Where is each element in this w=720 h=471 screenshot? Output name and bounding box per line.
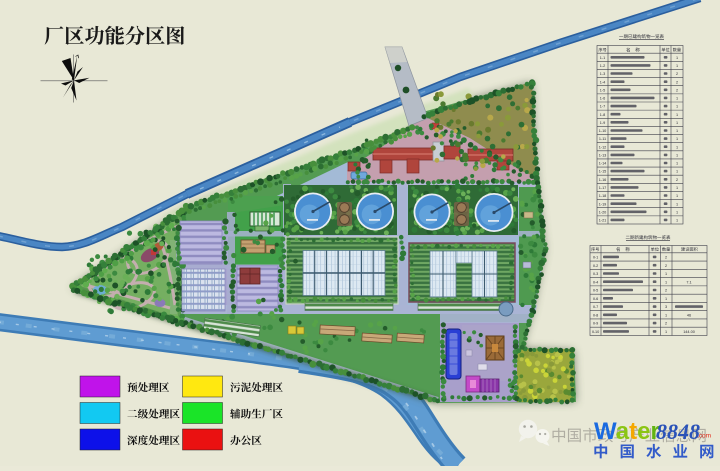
svg-text:1-19: 1-19: [599, 202, 607, 206]
svg-text:II-3: II-3: [593, 272, 599, 276]
svg-text:1-17: 1-17: [599, 186, 607, 190]
svg-text:2: 2: [665, 256, 667, 260]
svg-text:1: 1: [665, 272, 667, 276]
svg-text:1-12: 1-12: [599, 145, 607, 149]
svg-text:1: 1: [676, 121, 678, 125]
svg-text:1: 1: [676, 145, 678, 149]
svg-text:1-3: 1-3: [600, 72, 606, 76]
svg-text:1-14: 1-14: [599, 162, 607, 166]
svg-text:2: 2: [676, 80, 678, 84]
svg-text:1-7: 1-7: [600, 105, 606, 109]
svg-text:1: 1: [676, 170, 678, 174]
svg-text:II-2: II-2: [593, 264, 599, 268]
svg-text:3: 3: [665, 305, 667, 309]
svg-text:1: 1: [676, 186, 678, 190]
svg-text:1: 1: [665, 280, 667, 284]
svg-text:1-11: 1-11: [599, 137, 606, 141]
svg-text:1-15: 1-15: [599, 170, 607, 174]
svg-text:1: 1: [676, 202, 678, 206]
svg-text:2: 2: [676, 72, 678, 76]
svg-text:1: 1: [676, 137, 678, 141]
svg-text:II-8: II-8: [593, 313, 599, 317]
svg-text:1-4: 1-4: [600, 80, 606, 84]
svg-text:1-10: 1-10: [599, 129, 607, 133]
svg-text:1: 1: [676, 194, 678, 198]
svg-text:1: 1: [676, 97, 678, 101]
svg-text:1-20: 1-20: [599, 210, 607, 214]
svg-text:1: 1: [676, 105, 678, 109]
svg-text:1-13: 1-13: [599, 154, 607, 158]
svg-text:1-21: 1-21: [599, 219, 607, 223]
svg-text:1: 1: [676, 219, 678, 223]
svg-text:1-1: 1-1: [600, 56, 606, 60]
svg-text:1: 1: [676, 210, 678, 214]
svg-text:1: 1: [665, 297, 667, 301]
svg-text:II-5: II-5: [593, 289, 599, 293]
svg-text:2: 2: [676, 178, 678, 182]
svg-text:1: 1: [665, 313, 667, 317]
svg-text:.com: .com: [697, 433, 711, 440]
svg-text:1-2: 1-2: [600, 64, 606, 68]
svg-text:1: 1: [676, 162, 678, 166]
svg-text:II-1: II-1: [593, 256, 599, 260]
svg-text:46: 46: [687, 313, 691, 317]
svg-text:2: 2: [665, 322, 667, 326]
svg-text:1-18: 1-18: [599, 194, 607, 198]
svg-text:1-5: 1-5: [600, 88, 606, 92]
svg-text:1: 1: [676, 154, 678, 158]
svg-text:1: 1: [676, 64, 678, 68]
svg-text:II-9: II-9: [593, 322, 599, 326]
svg-text:1: 1: [676, 113, 678, 117]
svg-text:2: 2: [665, 289, 667, 293]
svg-text:Water: Water: [594, 418, 660, 445]
svg-text:2: 2: [676, 88, 678, 92]
svg-text:1: 1: [676, 56, 678, 60]
svg-text:II-4: II-4: [593, 280, 599, 284]
svg-text:1-8: 1-8: [600, 113, 606, 117]
svg-text:1: 1: [676, 129, 678, 133]
svg-text:8848: 8848: [656, 419, 700, 444]
svg-text:1-16: 1-16: [599, 178, 607, 182]
svg-text:II-7: II-7: [593, 305, 599, 309]
svg-text:II-10: II-10: [592, 330, 600, 334]
svg-text:1-6: 1-6: [600, 97, 606, 101]
svg-text:2: 2: [665, 264, 667, 268]
svg-text:7.1: 7.1: [686, 280, 691, 284]
svg-text:144.00: 144.00: [683, 330, 695, 334]
svg-text:1: 1: [665, 330, 667, 334]
svg-text:1-9: 1-9: [600, 121, 606, 125]
svg-text:II-6: II-6: [593, 297, 599, 301]
